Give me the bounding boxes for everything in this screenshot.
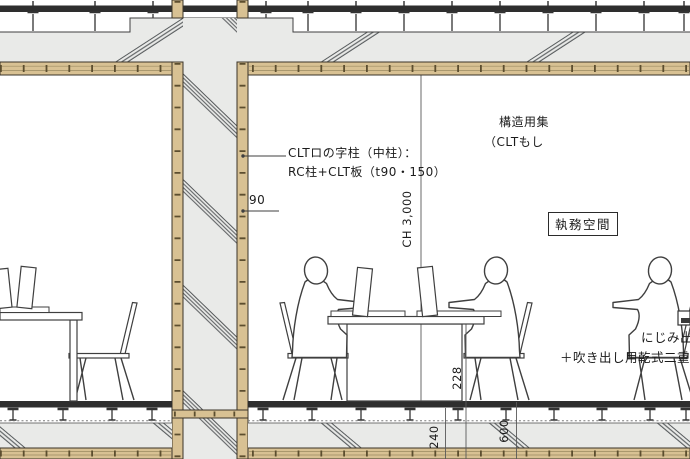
side-object-detail bbox=[681, 318, 690, 323]
clt-column-note-line1: CLTロの字柱（中柱）： bbox=[288, 146, 417, 160]
clt-column-note-line2: RC柱+CLT板（t90・150） bbox=[288, 165, 446, 179]
desk-leg-panel bbox=[70, 320, 77, 401]
dim-240-label: 240 bbox=[427, 425, 441, 448]
material-note-line2: （CLTもし bbox=[484, 135, 544, 149]
dim-600-label: 600 bbox=[497, 419, 511, 442]
dim-228-label: 228 bbox=[450, 366, 464, 389]
bottom-note-line1: にじみ出 bbox=[641, 330, 690, 345]
column-floor-cap bbox=[172, 410, 248, 418]
desk-top bbox=[328, 317, 484, 325]
desk-base bbox=[347, 324, 462, 401]
clt-ceiling-slab bbox=[0, 62, 690, 75]
material-note-line1: 構造用集 bbox=[499, 115, 549, 129]
ceiling-height-label: CH 3,000 bbox=[400, 190, 414, 247]
room-name-label: 執務空間 bbox=[548, 212, 618, 236]
clt-box-column bbox=[172, 0, 248, 459]
clt-floor-slab bbox=[0, 448, 690, 459]
desk-top bbox=[0, 313, 82, 321]
dim-90-label: 90 bbox=[249, 193, 265, 207]
bottom-note-line2: ＋吹き出し用乾式二重 bbox=[560, 350, 690, 365]
architectural-section-drawing: CLTロの字柱（中柱）： RC柱+CLT板（t90・150） 構造用集 （CLT… bbox=[0, 0, 690, 459]
